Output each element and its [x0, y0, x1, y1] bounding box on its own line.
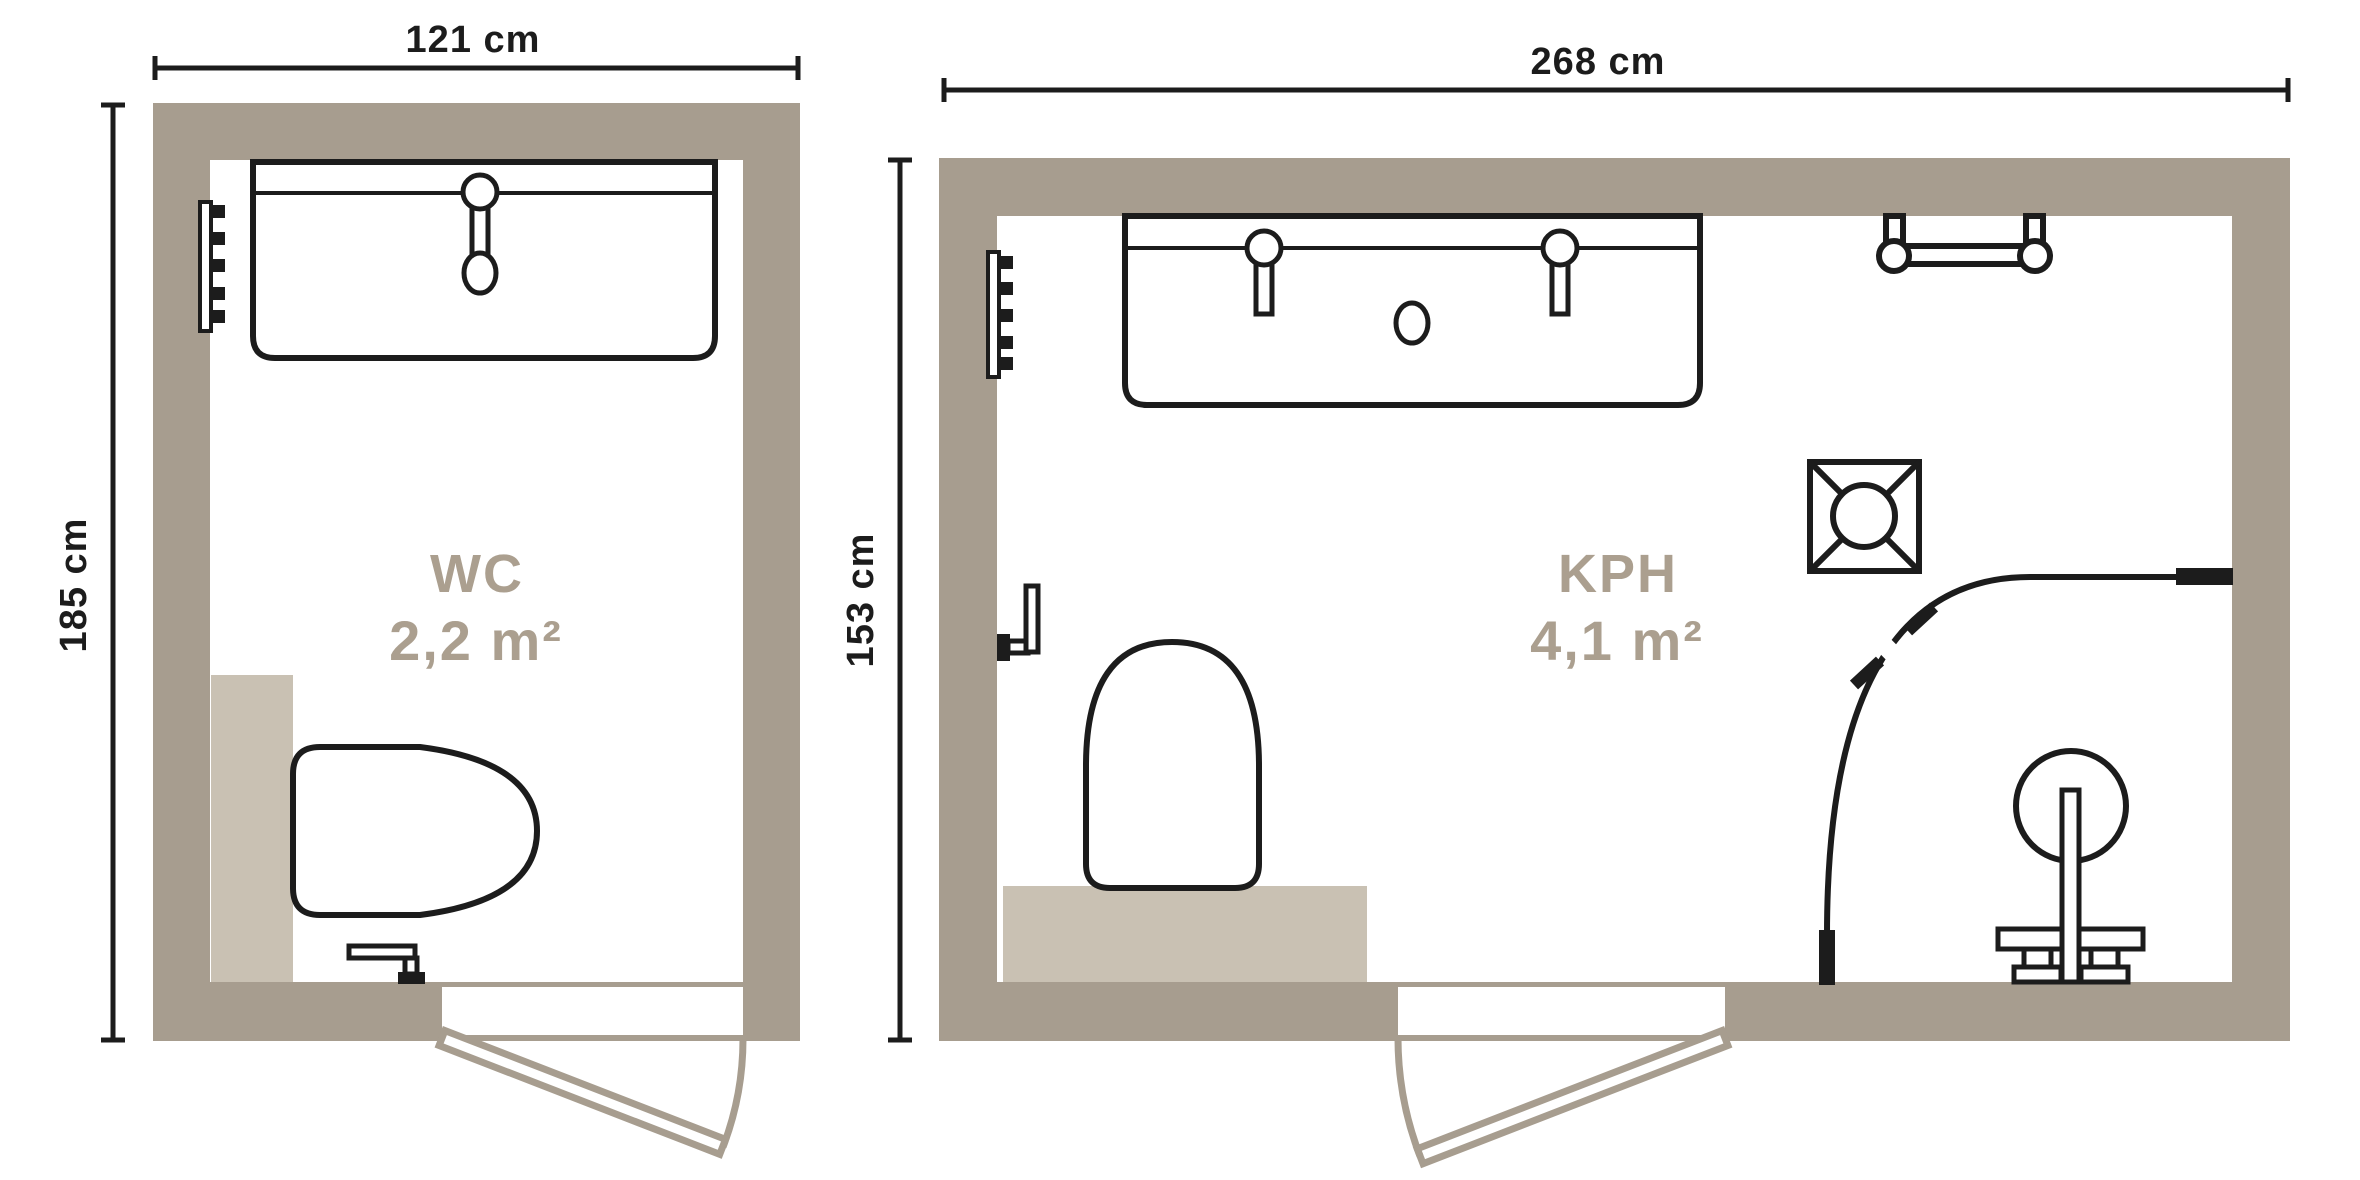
kph-room-area: 4,1 m²: [1530, 609, 1704, 672]
kph-ceiling-vent-icon: [1810, 462, 1919, 571]
wc-width-dimension: 121 cm: [155, 19, 798, 80]
wc-room-area: 2,2 m²: [389, 609, 563, 672]
kph-height-dimension: 153 cm: [840, 160, 912, 1040]
kph-width-dim-label: 268 cm: [1531, 41, 1666, 83]
wc-faucet-icon: [463, 175, 497, 209]
kph-faucet-icon-left: [1247, 231, 1281, 265]
kph-drain-icon: [1396, 303, 1428, 343]
floorplan-wc: 121 cm 185 cm WC 2,2 m²: [53, 19, 800, 1154]
kph-faucet-icon-right: [1543, 231, 1577, 265]
kph-shower-block: [1003, 886, 1367, 982]
wc-door-swing-arc: [723, 1038, 743, 1147]
kph-toilet: [1086, 642, 1259, 888]
wc-room-label: WC: [430, 544, 524, 604]
kph-height-dim-label: 153 cm: [840, 533, 882, 668]
wc-faucet-stem: [472, 206, 488, 254]
floorplan-canvas: 121 cm 185 cm WC 2,2 m²: [0, 0, 2360, 1180]
wc-toilet: [293, 747, 537, 915]
floorplan-kph: 268 cm 153 cm KPH 4,1 m²: [840, 41, 2290, 1164]
kph-door-leaf: [1417, 1031, 1728, 1164]
kph-door-opening: [1398, 987, 1725, 1035]
kph-room-label: KPH: [1558, 544, 1678, 604]
wc-height-dim-label: 185 cm: [53, 518, 95, 653]
floorplans-svg: 121 cm 185 cm WC 2,2 m²: [0, 0, 2360, 1180]
wc-width-dim-label: 121 cm: [406, 19, 541, 61]
kph-faucet-stem-right: [1552, 262, 1568, 314]
wc-drain-icon: [464, 253, 496, 293]
wc-shower-block: [211, 675, 293, 982]
kph-faucet-stem-left: [1256, 262, 1272, 314]
kph-width-dimension: 268 cm: [944, 41, 2288, 102]
kph-door-swing-arc: [1398, 1038, 1420, 1156]
wc-door-leaf: [439, 1031, 725, 1155]
wc-door-opening: [442, 987, 743, 1035]
wc-height-dimension: 185 cm: [53, 105, 125, 1040]
